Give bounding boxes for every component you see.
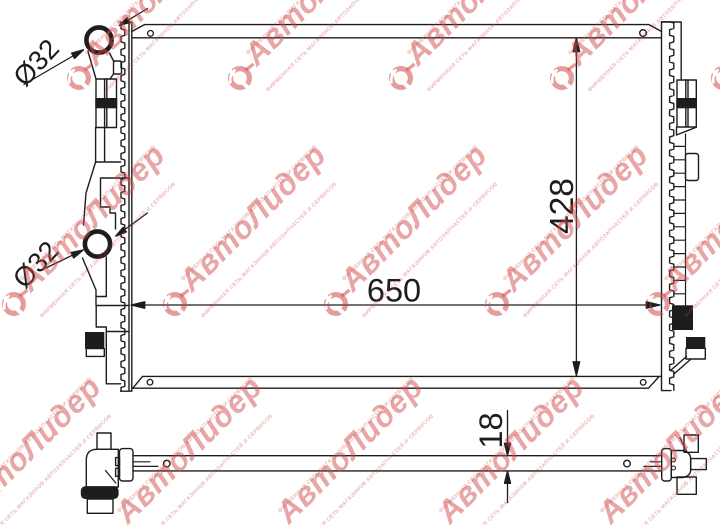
svg-text:18: 18 — [473, 412, 509, 448]
svg-text:428: 428 — [544, 178, 581, 234]
svg-text:650: 650 — [367, 272, 421, 308]
svg-text:Ø32: Ø32 — [6, 235, 64, 294]
svg-text:Ø32: Ø32 — [7, 33, 65, 92]
